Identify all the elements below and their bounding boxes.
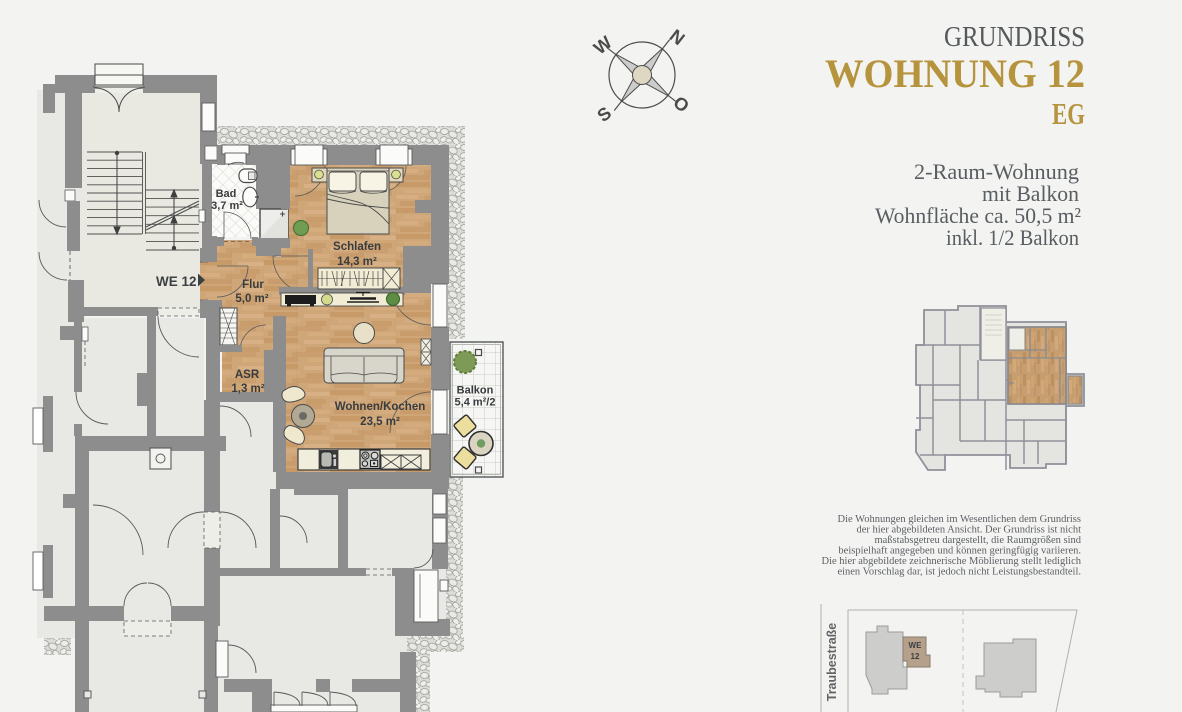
svg-text:einen Vorschlag dar, ist jedoc: einen Vorschlag dar, ist jedoch nicht Le… <box>837 567 1081 578</box>
svg-text:GRUNDRISS: GRUNDRISS <box>944 21 1085 53</box>
svg-text:inkl. 1/2 Balkon: inkl. 1/2 Balkon <box>946 225 1079 250</box>
svg-text:Bad: Bad <box>216 188 237 200</box>
svg-text:3,7 m²: 3,7 m² <box>211 200 243 212</box>
svg-text:EG: EG <box>1052 96 1085 131</box>
svg-text:ASR: ASR <box>235 369 260 381</box>
svg-text:5,4 m²/2: 5,4 m²/2 <box>455 397 496 409</box>
svg-text:12: 12 <box>911 652 920 661</box>
svg-text:14,3 m²: 14,3 m² <box>337 256 377 268</box>
svg-text:beispielhaft angegeben und kön: beispielhaft angegeben und können gering… <box>838 546 1081 557</box>
svg-text:Traubestraße: Traubestraße <box>825 623 839 702</box>
svg-text:Schlafen: Schlafen <box>333 241 381 253</box>
svg-text:Wohnen/Kochen: Wohnen/Kochen <box>335 401 426 413</box>
svg-text:Die Wohnungen gleichen im Wese: Die Wohnungen gleichen im Wesentlichen d… <box>838 514 1081 525</box>
svg-text:Balkon: Balkon <box>457 385 494 397</box>
svg-text:Flur: Flur <box>242 279 264 291</box>
svg-text:WE 12: WE 12 <box>156 274 197 289</box>
svg-text:Die hier abgebildete zeichneri: Die hier abgebildete zeichnerische Möbli… <box>822 556 1082 567</box>
svg-text:5,0 m²: 5,0 m² <box>235 293 268 305</box>
svg-text:maßstabsgetreu dargestellt, di: maßstabsgetreu dargestellt, die Raumgröß… <box>874 535 1081 546</box>
svg-text:23,5 m²: 23,5 m² <box>360 416 400 428</box>
svg-text:1,3 m²: 1,3 m² <box>231 383 264 395</box>
svg-text:WE: WE <box>909 641 923 650</box>
svg-text:der hier abgebildeten Ansicht.: der hier abgebildeten Ansicht. Der Grund… <box>856 525 1081 536</box>
svg-text:WOHNUNG 12: WOHNUNG 12 <box>825 51 1085 96</box>
